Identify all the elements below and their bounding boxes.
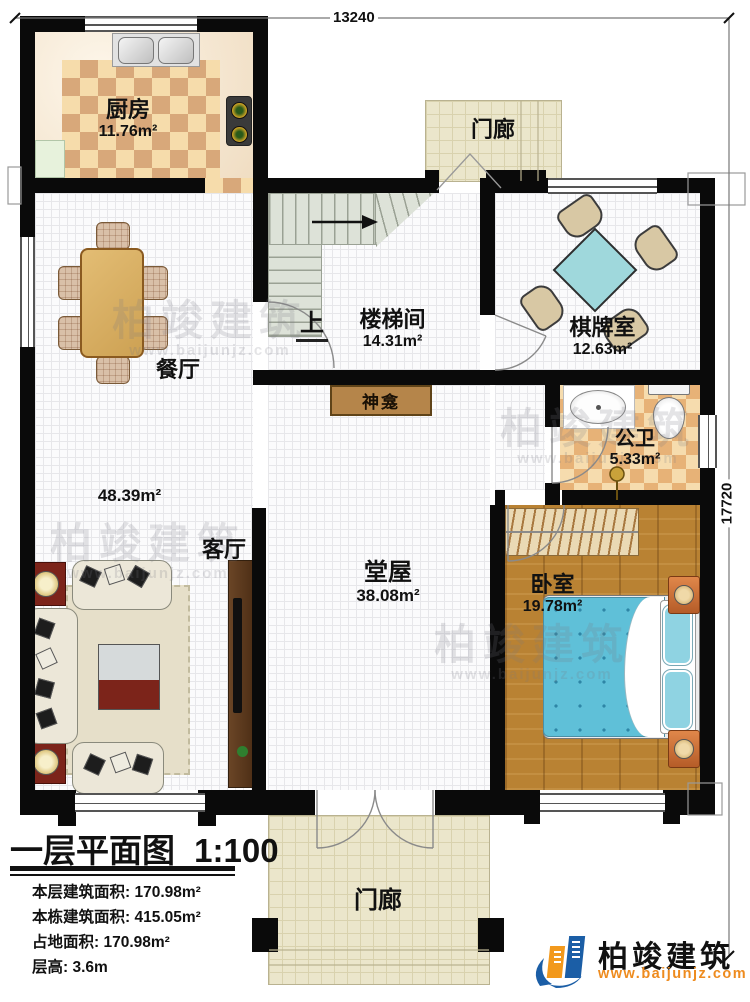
sink-drain xyxy=(596,405,601,410)
shrine-cabinet: 神龛 xyxy=(330,385,432,416)
window xyxy=(698,415,717,468)
company-logo-icon xyxy=(528,928,598,990)
wall-nub xyxy=(58,790,76,826)
legend-row: 占地面积: 170.98m² xyxy=(32,930,170,952)
window xyxy=(540,793,665,812)
bed-pillow xyxy=(663,605,692,665)
room-label-bathroom: 公卫 5.33m² xyxy=(580,428,690,469)
coffee-table xyxy=(98,644,160,710)
wall xyxy=(205,790,315,815)
room-label-porch-top: 门廊 xyxy=(433,118,553,142)
wall xyxy=(20,16,35,237)
wall xyxy=(495,490,505,505)
dining-chair xyxy=(96,222,130,250)
wall xyxy=(425,170,439,193)
nightstand-lamp xyxy=(674,585,694,605)
window xyxy=(75,793,205,812)
wall xyxy=(253,370,715,385)
dimension-height: 17720 xyxy=(718,480,735,528)
dimension-tick xyxy=(10,13,20,23)
room-label-dining: 餐厅 xyxy=(138,358,218,382)
stair-up-label: 上 xyxy=(296,303,328,342)
legend-underline-thin xyxy=(10,874,235,876)
shrine-label: 神龛 xyxy=(362,388,400,413)
wall xyxy=(253,192,268,302)
wall xyxy=(700,468,715,815)
stove-burner-top xyxy=(231,102,248,119)
stove-burner-bottom xyxy=(231,126,248,143)
window xyxy=(85,16,197,32)
dimension-width: 13240 xyxy=(330,9,378,26)
wall xyxy=(20,178,205,193)
wall xyxy=(490,505,505,790)
dining-chair xyxy=(96,356,130,384)
dining-chair xyxy=(140,266,168,300)
wall xyxy=(545,385,560,427)
legend-row: 层高: 3.6m xyxy=(32,955,108,977)
wall xyxy=(562,490,715,505)
legend-row: 本栋建筑面积: 415.05m² xyxy=(32,905,201,927)
dimension-tick xyxy=(724,13,734,23)
wall xyxy=(480,192,495,315)
living-area-label: 48.39m² xyxy=(72,486,187,506)
wall-nub xyxy=(663,790,680,824)
porch-pillar xyxy=(478,918,504,952)
room-label-hall: 堂屋 38.08m² xyxy=(328,560,448,607)
corridor-floor xyxy=(495,385,545,490)
company-website: www.baijunjz.com xyxy=(598,966,747,982)
stairs-upper-flight xyxy=(268,193,376,245)
dining-chair xyxy=(140,316,168,350)
wall xyxy=(268,178,425,193)
room-label-kitchen: 厨房 11.76m² xyxy=(68,98,188,141)
window xyxy=(20,237,35,347)
table-lamp xyxy=(33,571,59,597)
wall xyxy=(253,16,268,193)
wall xyxy=(545,483,560,505)
legend-row: 本层建筑面积: 170.98m² xyxy=(32,880,201,902)
kitchen-sink-basin-left xyxy=(118,37,154,64)
nightstand-lamp xyxy=(674,739,694,759)
room-label-bedroom: 卧室 19.78m² xyxy=(495,573,610,616)
kitchen-door-opening xyxy=(205,178,253,193)
wardrobe xyxy=(505,508,639,556)
tv-plant xyxy=(237,746,248,757)
table-lamp xyxy=(33,749,59,775)
wall xyxy=(480,178,548,193)
legend-title: 一层平面图 1:100 xyxy=(10,824,279,872)
floor-plan: 神龛 柏竣建筑 www.baijunjz.com 柏竣 xyxy=(0,0,750,1002)
tv-screen xyxy=(233,598,242,713)
dining-table xyxy=(80,248,144,358)
room-label-porch-bottom: 门廊 xyxy=(318,888,438,914)
room-label-living: 客厅 xyxy=(188,538,260,562)
kitchen-sink-basin-right xyxy=(158,37,194,64)
wall xyxy=(20,347,35,815)
window xyxy=(548,178,657,194)
wall-nub xyxy=(524,790,540,824)
room-label-chess-room: 棋牌室 12.63m² xyxy=(540,316,665,359)
room-label-stairwell: 楼梯间 14.31m² xyxy=(330,308,455,351)
bed-pillow xyxy=(663,670,692,730)
legend-underline-thick xyxy=(10,866,235,871)
kitchen-cabinet xyxy=(35,140,65,178)
porch-pillar xyxy=(252,918,278,952)
